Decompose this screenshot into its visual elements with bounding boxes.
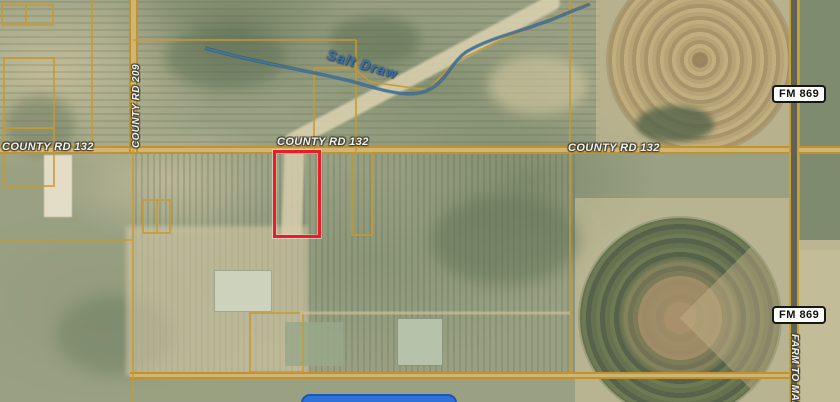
vegetation-patch <box>430 195 580 285</box>
road-label-county-rd-132-right: COUNTY RD 132 <box>568 142 660 154</box>
terrain-texture <box>0 0 600 150</box>
vegetation-patch <box>165 28 285 88</box>
irrigation-circle-north <box>608 0 792 152</box>
road-south <box>130 372 795 379</box>
stream-salt-draw <box>205 4 590 94</box>
terrain-texture <box>135 152 575 374</box>
bare-ground-patch <box>488 55 588 115</box>
route-shield-fm-869-north: FM 869 <box>772 85 826 103</box>
parcel-lines-overlay <box>0 0 840 402</box>
pond <box>285 322 343 366</box>
water-label-salt-draw: Salt Draw <box>325 46 399 81</box>
clearing <box>44 155 72 217</box>
pond <box>214 270 272 312</box>
road-label-farm-to-market: FARM TO MAR <box>789 334 800 402</box>
road-county-rd-132 <box>0 146 840 154</box>
open-land <box>126 226 308 376</box>
aerial-parcel-map[interactable]: COUNTY RD 132 COUNTY RD 132 COUNTY RD 13… <box>0 0 840 402</box>
road-label-county-rd-209: COUNTY RD 209 <box>131 64 142 148</box>
route-shield-fm-869-south: FM 869 <box>772 306 826 324</box>
vegetation-patch <box>55 295 175 375</box>
terrain-patch <box>800 0 840 250</box>
road-label-county-rd-132-left: COUNTY RD 132 <box>2 141 94 153</box>
parcel-highlight[interactable] <box>273 150 321 238</box>
terrain-patch <box>596 0 796 152</box>
pond <box>397 318 443 366</box>
irrigation-circle-south <box>580 218 780 402</box>
cleared-corridor <box>281 0 562 152</box>
bottom-blue-ui-bar[interactable] <box>301 394 457 402</box>
terrain-patch <box>575 198 797 402</box>
road-label-county-rd-132-center: COUNTY RD 132 <box>277 136 369 148</box>
